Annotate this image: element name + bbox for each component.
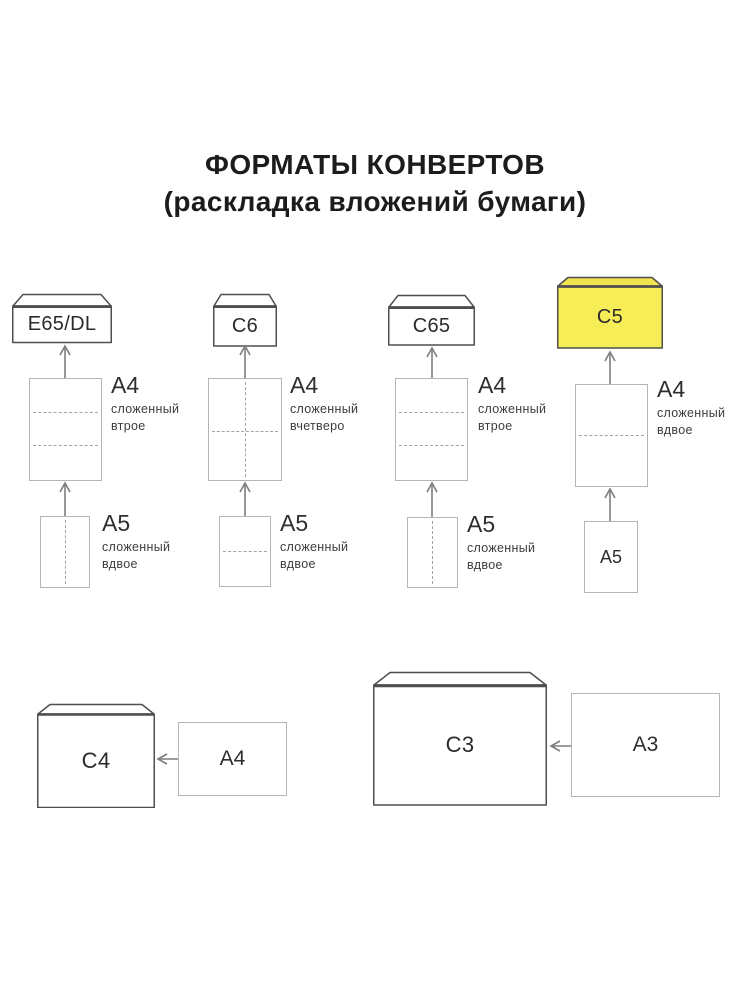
fold-line	[223, 551, 267, 552]
fold-line	[33, 445, 98, 446]
envelope-formats-diagram: ФОРМАТЫ КОНВЕРТОВ (раскладка вложений бу…	[0, 0, 750, 1000]
envelope-c3: C3	[373, 671, 547, 806]
fold-line	[33, 412, 98, 413]
a4-label-block: A4 сложенный втрое	[478, 373, 546, 434]
fold-desc: втрое	[478, 418, 546, 435]
a5-label-block: A5 сложенный вдвое	[280, 511, 348, 572]
envelope-label: C3	[373, 685, 547, 805]
sheet-name: A5	[585, 522, 637, 592]
fold-desc: втрое	[111, 418, 179, 435]
a4-label-block: A4 сложенный вчетверо	[290, 373, 358, 434]
fold-desc: сложенный	[280, 539, 348, 556]
page-title: ФОРМАТЫ КОНВЕРТОВ (раскладка вложений бу…	[0, 146, 750, 220]
sheet-name: A4	[657, 377, 725, 401]
arrow-up-icon	[603, 350, 617, 384]
sheet-name: A4	[290, 373, 358, 397]
a5-label-block: A5 сложенный вдвое	[467, 512, 535, 573]
a3-sheet: A3	[571, 693, 720, 797]
arrow-left-icon	[156, 752, 180, 766]
sheet-name: A4	[478, 373, 546, 397]
title-line-1: ФОРМАТЫ КОНВЕРТОВ	[0, 146, 750, 183]
sheet-name: A4	[111, 373, 179, 397]
fold-desc: вдвое	[102, 556, 170, 573]
envelope-label: C65	[388, 307, 475, 345]
sheet-name: A4	[179, 723, 286, 795]
a4-sheet-folded-in-three	[395, 378, 468, 481]
fold-line	[432, 521, 433, 584]
envelope-e65dl: E65/DL	[12, 293, 112, 344]
fold-desc: сложенный	[102, 539, 170, 556]
a5-label-block: A5 сложенный вдвое	[102, 511, 170, 572]
arrow-up-icon	[425, 481, 439, 517]
fold-line	[579, 435, 644, 436]
a4-sheet-folded-in-three	[29, 378, 102, 481]
fold-desc: вдвое	[280, 556, 348, 573]
fold-desc: вдвое	[467, 557, 535, 574]
a5-sheet-folded-in-two	[219, 516, 271, 587]
fold-desc: сложенный	[478, 401, 546, 418]
sheet-name: A5	[102, 511, 170, 535]
a4-label-block: A4 сложенный втрое	[111, 373, 179, 434]
envelope-c5-highlighted: C5	[557, 276, 663, 349]
fold-desc: сложенный	[290, 401, 358, 418]
fold-desc: вдвое	[657, 422, 725, 439]
sheet-name: A5	[280, 511, 348, 535]
envelope-label: E65/DL	[12, 306, 112, 342]
arrow-left-icon	[549, 739, 573, 753]
fold-line	[212, 431, 278, 432]
arrow-up-icon	[603, 487, 617, 522]
fold-line	[245, 382, 246, 477]
arrow-up-icon	[238, 481, 252, 517]
fold-desc: сложенный	[657, 405, 725, 422]
fold-desc: сложенный	[467, 540, 535, 557]
envelope-c4: C4	[37, 703, 155, 808]
fold-line	[399, 412, 464, 413]
a4-sheet-folded-in-four	[208, 378, 282, 481]
arrow-up-icon	[58, 481, 72, 517]
sheet-name: A3	[572, 694, 719, 796]
a5-sheet: A5	[584, 521, 638, 593]
a4-label-block: A4 сложенный вдвое	[657, 377, 725, 438]
envelope-label: C4	[37, 714, 155, 808]
title-line-2: (раскладка вложений бумаги)	[0, 183, 750, 220]
a5-sheet-folded-in-two	[407, 517, 458, 588]
envelope-c65: C65	[388, 294, 475, 346]
a5-sheet-folded-in-two	[40, 516, 90, 588]
fold-line	[65, 520, 66, 584]
arrow-up-icon	[425, 346, 439, 378]
arrow-up-icon	[238, 344, 252, 378]
sheet-name: A5	[467, 512, 535, 536]
fold-desc: сложенный	[111, 401, 179, 418]
envelope-label: C6	[213, 306, 277, 346]
arrow-up-icon	[58, 344, 72, 378]
a4-sheet: A4	[178, 722, 287, 796]
fold-desc: вчетверо	[290, 418, 358, 435]
fold-line	[399, 445, 464, 446]
envelope-c6: C6	[213, 293, 277, 347]
envelope-label: C5	[557, 286, 663, 348]
a4-sheet-folded-in-two	[575, 384, 648, 487]
